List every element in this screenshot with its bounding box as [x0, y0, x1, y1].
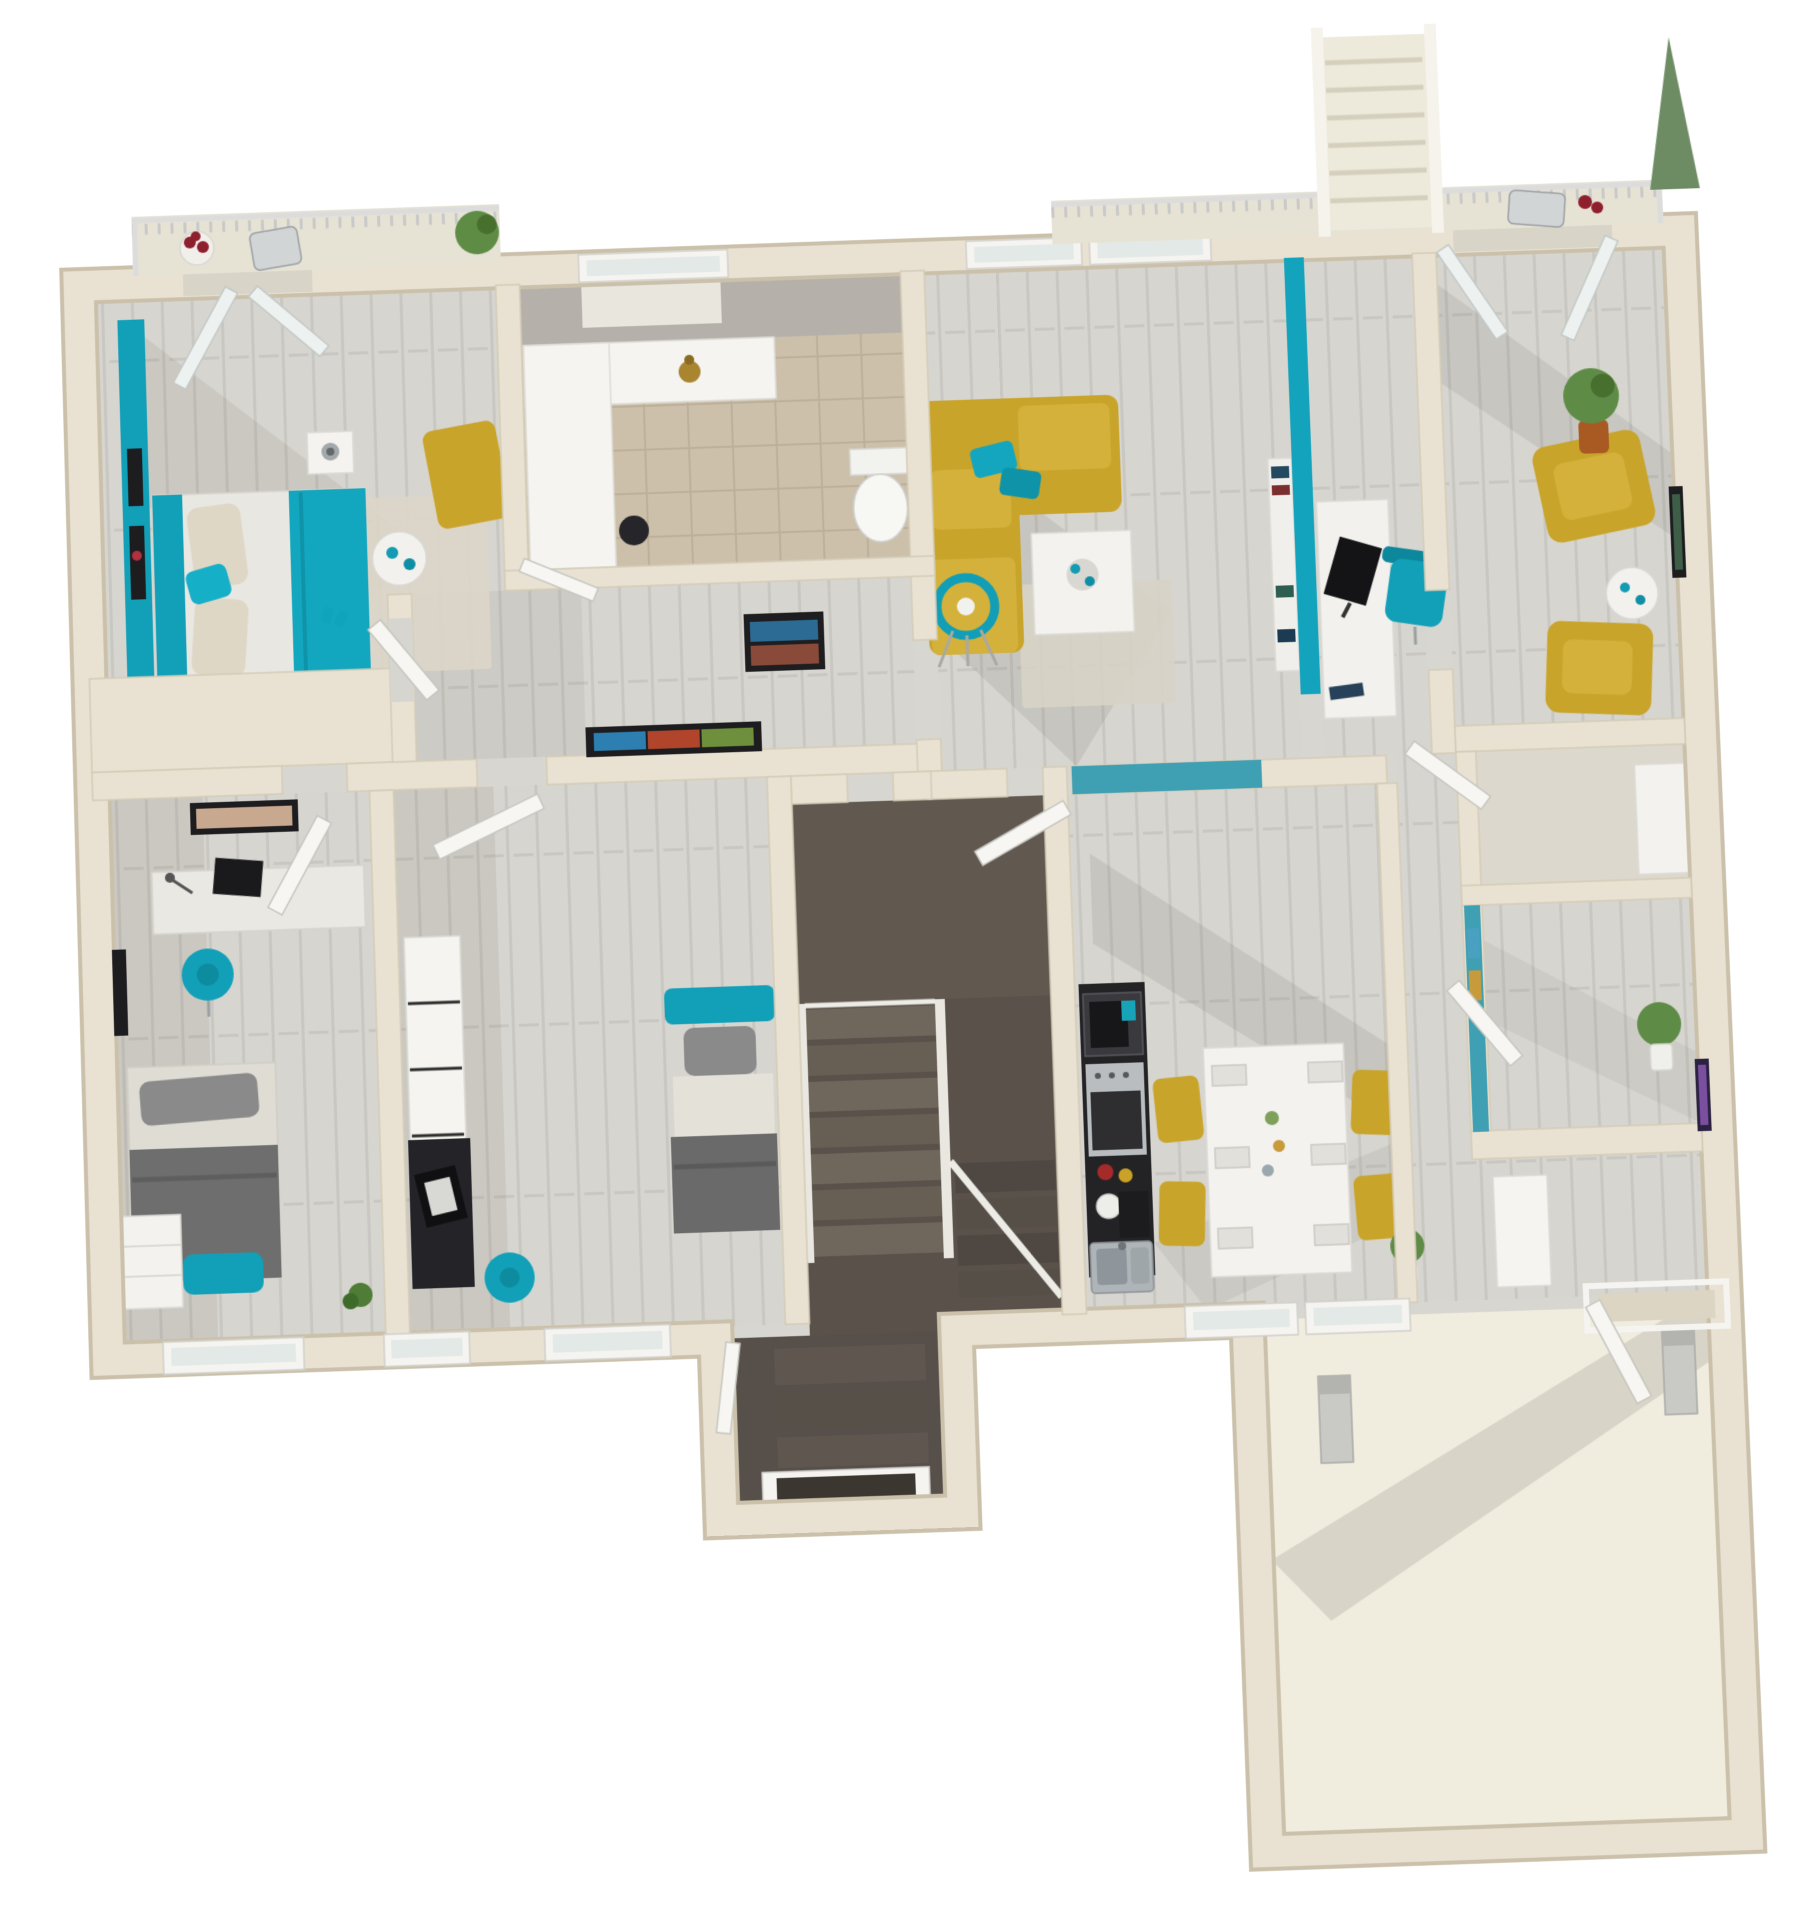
corridor-art-photo-2	[751, 644, 820, 666]
shelf-book-2	[1272, 485, 1290, 496]
bedroom2-blanket	[671, 1133, 780, 1233]
ext-stair-tread-1	[1325, 60, 1422, 63]
stair-tread-6	[811, 1186, 942, 1221]
bedroom1-teal-bench	[183, 1252, 264, 1295]
place-setting-1	[1212, 1065, 1247, 1086]
bedroom1-photo	[196, 806, 292, 829]
floorplan-tilt-wrapper	[0, 0, 1817, 1920]
sink-basin-2	[1130, 1247, 1149, 1284]
sofa-cushion-left	[930, 468, 1012, 530]
wall-living-left-b	[917, 739, 942, 772]
bedroom2-headboard	[664, 985, 775, 1025]
floorplan-3d-render	[0, 0, 1817, 1920]
wall-corridor-bottom-b	[347, 759, 478, 791]
wardrobe-seam-2	[410, 1068, 462, 1070]
kitchen-plate	[1096, 1194, 1121, 1219]
wall-corridor-bottom-a	[92, 766, 283, 801]
bedroom1-monitor	[213, 858, 264, 897]
vestibule-tread-1	[774, 1344, 926, 1386]
plant-pot	[1578, 419, 1609, 454]
bedroom2-art-2	[648, 729, 701, 749]
armchair-2-seat	[1562, 639, 1633, 695]
wardrobe-seam-1	[408, 1002, 460, 1004]
sofa-cushion-top	[1018, 403, 1112, 472]
accent-wall-frame-1	[127, 448, 144, 506]
sink-basin-1	[1096, 1248, 1127, 1285]
master-bed-headboard	[152, 495, 187, 691]
ext-stair-tread-3	[1327, 115, 1424, 118]
bedroom2-art-1	[594, 731, 646, 751]
sofa-teal-cushion-2	[999, 467, 1042, 500]
dining-window-1-glass	[1193, 1309, 1290, 1331]
vestibule-tread-3	[777, 1432, 929, 1468]
vanity-side	[523, 343, 616, 570]
place-setting-2	[1215, 1147, 1250, 1168]
floorplan-page	[0, 0, 1817, 1920]
bedroom2-sheet	[673, 1073, 775, 1139]
wall-master-bottom	[89, 668, 416, 773]
stair-tread-2	[806, 1041, 937, 1076]
wall-living-bottom-a	[927, 769, 1008, 800]
place-setting-4	[1308, 1061, 1343, 1082]
plan-root	[73, 15, 1770, 1892]
right-balcony-chair	[1508, 190, 1566, 227]
wall-office-right-b	[1429, 669, 1456, 754]
hall-poster-1	[1467, 928, 1480, 958]
coffee-maker	[1118, 1191, 1150, 1238]
left-balcony-side-rail	[134, 219, 136, 276]
toilet-tank	[850, 447, 909, 475]
place-setting-3	[1218, 1227, 1253, 1248]
stair-tread-3	[807, 1077, 938, 1112]
bedroom2-blanket-fold	[674, 1164, 776, 1168]
dining-chair-2	[1159, 1181, 1206, 1246]
teal-dishes	[1121, 1000, 1136, 1021]
wall-stair-top-a	[791, 774, 848, 804]
bedroom2-art-3	[701, 728, 754, 748]
shelf-book-3	[1276, 585, 1294, 598]
master-side-table	[372, 531, 427, 587]
wing-sideboard	[1493, 1175, 1552, 1288]
master-pillow-2	[191, 597, 249, 677]
ext-stair-tread-6	[1330, 198, 1427, 201]
wall-stair-top-b	[893, 771, 932, 800]
bistro-chair	[249, 226, 302, 271]
corridor-art-photo-1	[750, 620, 818, 642]
lamp-leg-3	[967, 635, 968, 666]
bedroom2-window-glass	[553, 1331, 663, 1353]
bedroom2-pillow	[683, 1026, 757, 1077]
stair-landing	[792, 795, 1051, 1004]
conifer-tree	[1644, 36, 1700, 189]
wing-door-opening	[1598, 1290, 1716, 1322]
oven-door	[1090, 1090, 1142, 1150]
wardrobe-seam-3	[412, 1134, 464, 1136]
stair-tread-r3	[957, 1232, 1058, 1266]
place-setting-5	[1311, 1144, 1346, 1165]
stair-tread-4	[809, 1114, 940, 1149]
stair-tread-7	[812, 1222, 943, 1257]
office-chair-base	[1415, 627, 1416, 645]
accent-wall-frame-2	[129, 526, 146, 600]
dining-window-2-glass	[1313, 1305, 1402, 1326]
place-setting-6	[1314, 1224, 1349, 1245]
dining-chair-1	[1152, 1075, 1205, 1144]
ext-stair-tread-4	[1328, 142, 1425, 145]
ext-stair-tread-5	[1329, 170, 1426, 173]
bedroom1-wall-frame	[112, 949, 128, 1036]
ext-stair-tread-2	[1326, 87, 1423, 90]
stair-tread-1	[805, 1005, 936, 1040]
wing-pillar-1-cap	[1318, 1375, 1351, 1394]
shelf-book-4	[1277, 629, 1295, 643]
stair-tread-5	[810, 1150, 941, 1185]
small-room-plant-pot	[1650, 1044, 1673, 1071]
bedroom1-window-2-glass	[391, 1338, 463, 1359]
shelf-book-1	[1271, 466, 1289, 479]
vestibule-tread-2	[776, 1388, 928, 1430]
storage-cabinet	[1634, 763, 1689, 875]
